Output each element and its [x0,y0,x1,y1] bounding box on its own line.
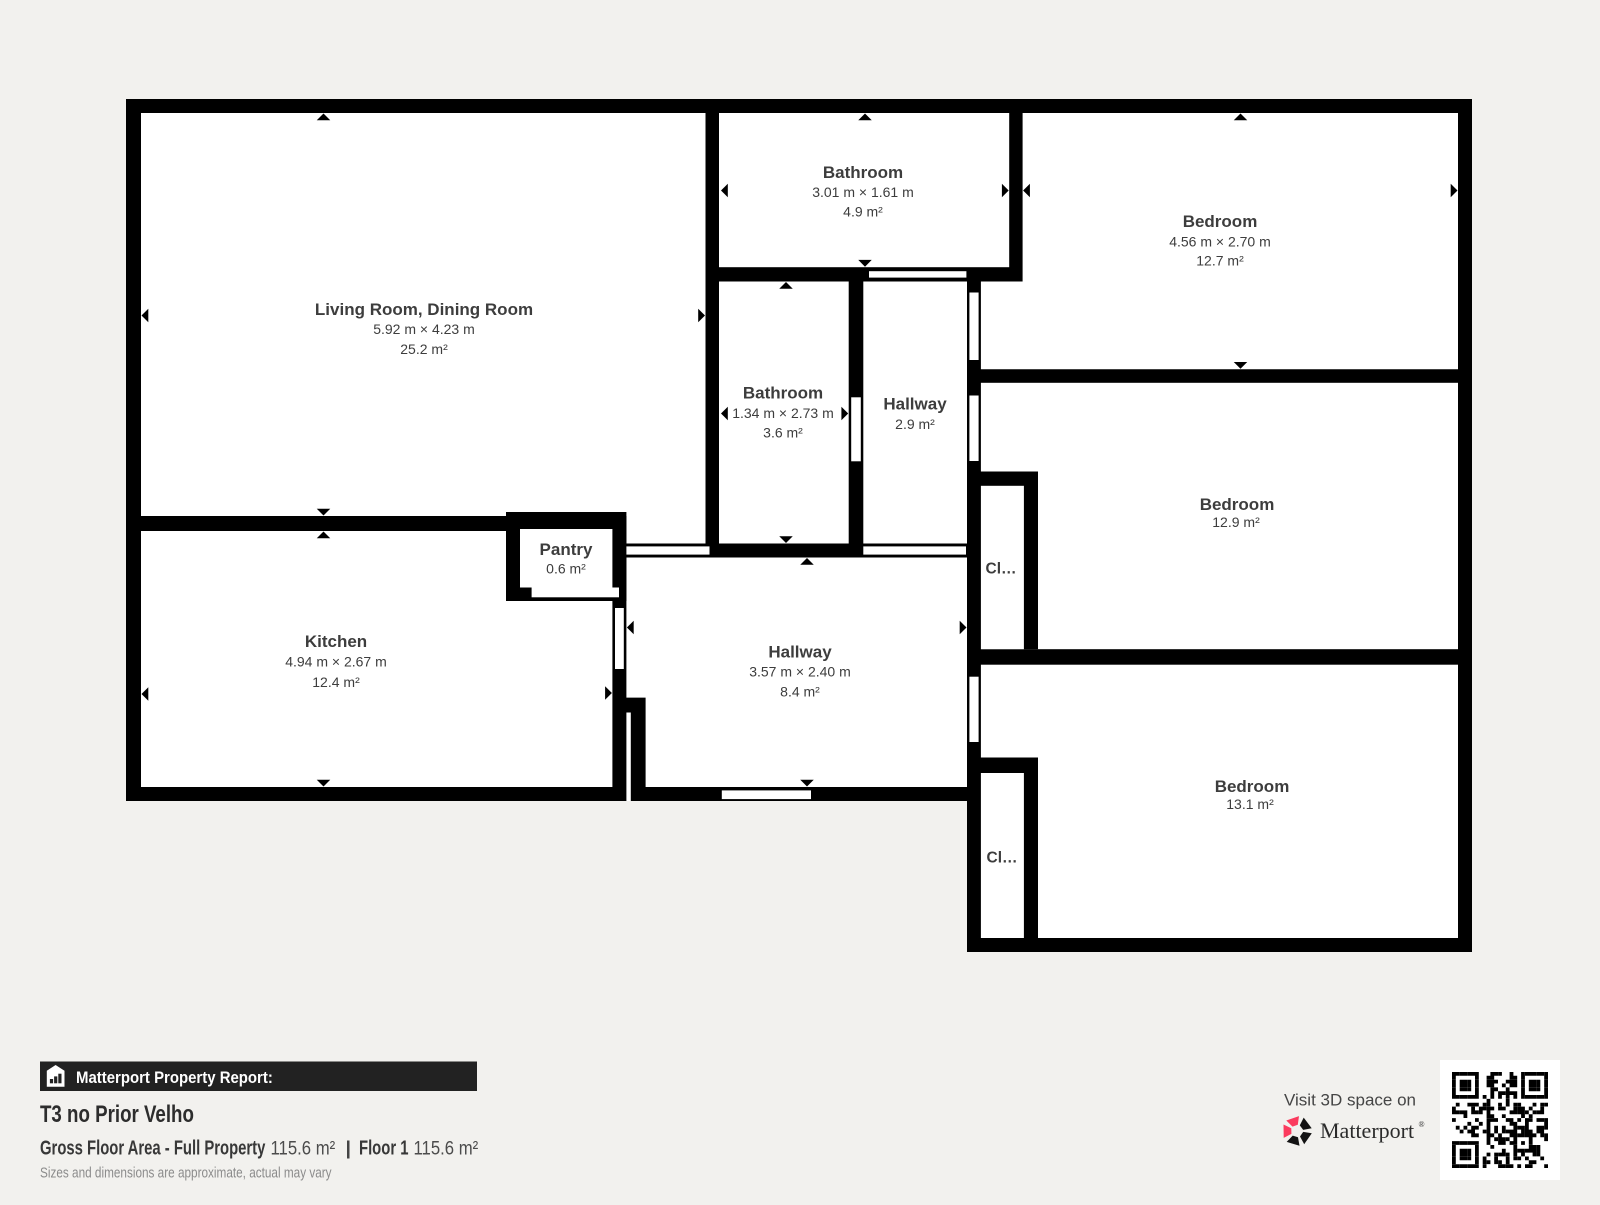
svg-text:12.7 m²: 12.7 m² [1196,253,1244,269]
svg-text:8.4 m²: 8.4 m² [780,684,820,700]
svg-text:0.6 m²: 0.6 m² [546,561,586,577]
svg-text:1.34 m × 2.73 m: 1.34 m × 2.73 m [732,405,834,421]
svg-text:3.57 m × 2.40 m: 3.57 m × 2.40 m [749,664,851,680]
svg-text:T3 no Prior Velho: T3 no Prior Velho [40,1101,194,1128]
svg-text:4.56 m × 2.70 m: 4.56 m × 2.70 m [1169,234,1271,250]
svg-text:2.9 m²: 2.9 m² [895,416,935,432]
svg-text:Cl…: Cl… [987,850,1018,867]
svg-text:®: ® [1419,1120,1425,1129]
svg-text:25.2 m²: 25.2 m² [400,341,448,357]
svg-text:Hallway: Hallway [768,643,832,662]
svg-text:12.4 m²: 12.4 m² [312,674,360,690]
svg-text:Visit 3D space on: Visit 3D space on [1284,1091,1416,1110]
svg-text:Pantry: Pantry [540,540,593,559]
svg-text:4.94 m × 2.67 m: 4.94 m × 2.67 m [285,654,387,670]
svg-text:Bedroom: Bedroom [1200,495,1275,514]
svg-text:13.1 m²: 13.1 m² [1226,796,1274,812]
svg-text:Floor 1: Floor 1 [359,1136,409,1159]
svg-text:Bedroom: Bedroom [1215,777,1290,796]
svg-text:3.6 m²: 3.6 m² [763,425,803,441]
svg-text:Gross Floor Area - Full Proper: Gross Floor Area - Full Property [40,1136,266,1159]
svg-text:12.9 m²: 12.9 m² [1212,514,1260,530]
svg-text:Sizes and dimensions are appro: Sizes and dimensions are approximate, ac… [40,1164,332,1181]
svg-text:115.6 m²: 115.6 m² [414,1138,479,1159]
svg-text:Matterport: Matterport [1320,1118,1414,1143]
svg-text:Bathroom: Bathroom [743,384,823,403]
svg-text:4.9 m²: 4.9 m² [843,204,883,220]
svg-text:115.6 m²: 115.6 m² [271,1138,336,1159]
svg-text:Living Room, Dining Room: Living Room, Dining Room [315,300,533,319]
svg-text:Kitchen: Kitchen [305,632,367,651]
svg-text:Cl…: Cl… [986,561,1017,578]
svg-text:Bathroom: Bathroom [823,163,903,182]
svg-text:Matterport Property Report:: Matterport Property Report: [76,1069,273,1087]
svg-text:3.01 m × 1.61 m: 3.01 m × 1.61 m [812,184,914,200]
svg-text:5.92 m × 4.23 m: 5.92 m × 4.23 m [373,321,475,337]
svg-text:Hallway: Hallway [883,395,947,414]
svg-text:Bedroom: Bedroom [1183,212,1258,231]
